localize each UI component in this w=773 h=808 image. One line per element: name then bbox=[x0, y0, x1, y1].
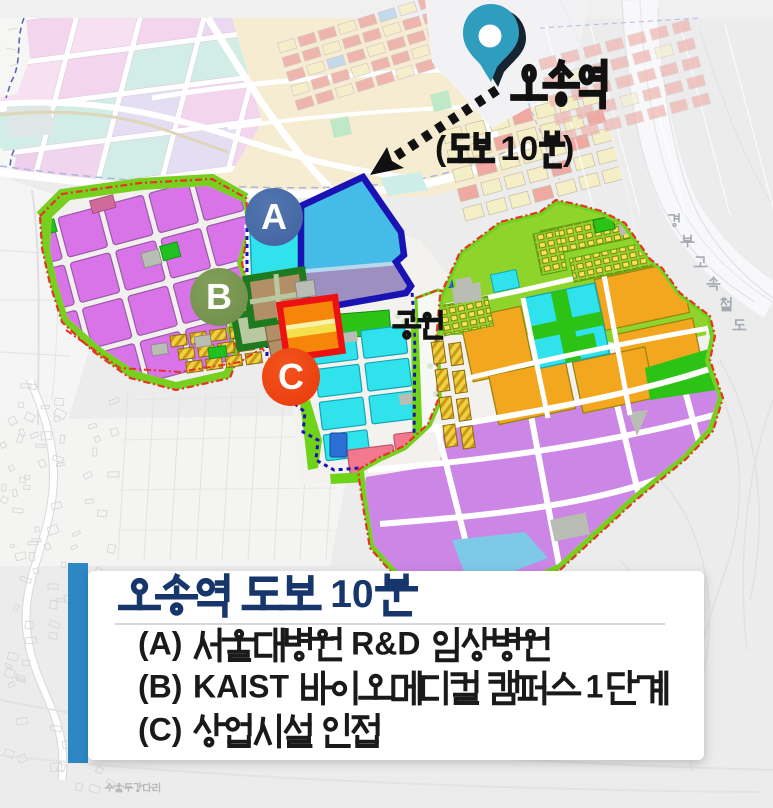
svg-text:): ) bbox=[563, 130, 574, 168]
svg-text:10: 10 bbox=[500, 130, 538, 168]
svg-text:(A): (A) bbox=[138, 626, 182, 662]
svg-text:10: 10 bbox=[330, 573, 373, 616]
svg-text:R&D: R&D bbox=[351, 626, 420, 662]
svg-text:A: A bbox=[261, 196, 287, 237]
svg-text:C: C bbox=[278, 356, 304, 397]
svg-text:(B): (B) bbox=[138, 669, 182, 705]
svg-text:(: ( bbox=[435, 130, 447, 168]
svg-text:KAIST: KAIST bbox=[193, 669, 289, 705]
svg-text:1: 1 bbox=[586, 669, 604, 705]
svg-text:B: B bbox=[206, 276, 232, 317]
svg-text:(C): (C) bbox=[138, 712, 182, 748]
